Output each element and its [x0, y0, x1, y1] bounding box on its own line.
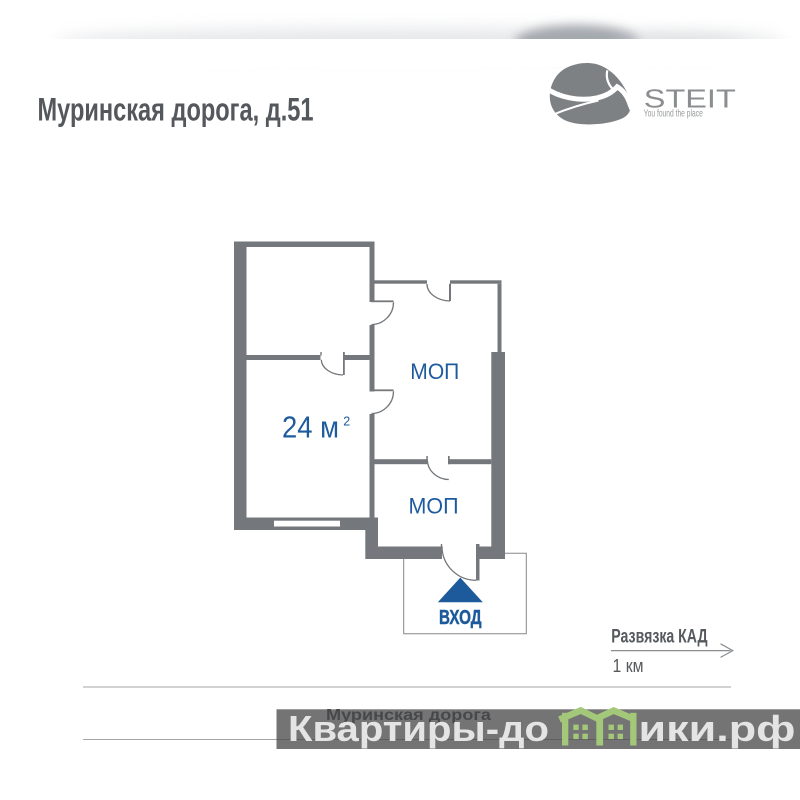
svg-text:2: 2 — [343, 415, 350, 429]
svg-text:You found the place: You found the place — [644, 108, 703, 119]
svg-text:Муринская дорога, д.51: Муринская дорога, д.51 — [38, 92, 314, 128]
svg-text:ики.рф: ики.рф — [639, 708, 796, 749]
svg-text:ВХОД: ВХОД — [439, 607, 482, 629]
svg-text:МОП: МОП — [410, 359, 459, 384]
svg-text:Развязка КАД: Развязка КАД — [611, 626, 708, 647]
svg-text:МОП: МОП — [409, 494, 459, 519]
svg-text:24 м: 24 м — [282, 410, 339, 444]
svg-text:Квартиры-до: Квартиры-до — [288, 708, 549, 749]
svg-text:1 км: 1 км — [613, 656, 644, 676]
